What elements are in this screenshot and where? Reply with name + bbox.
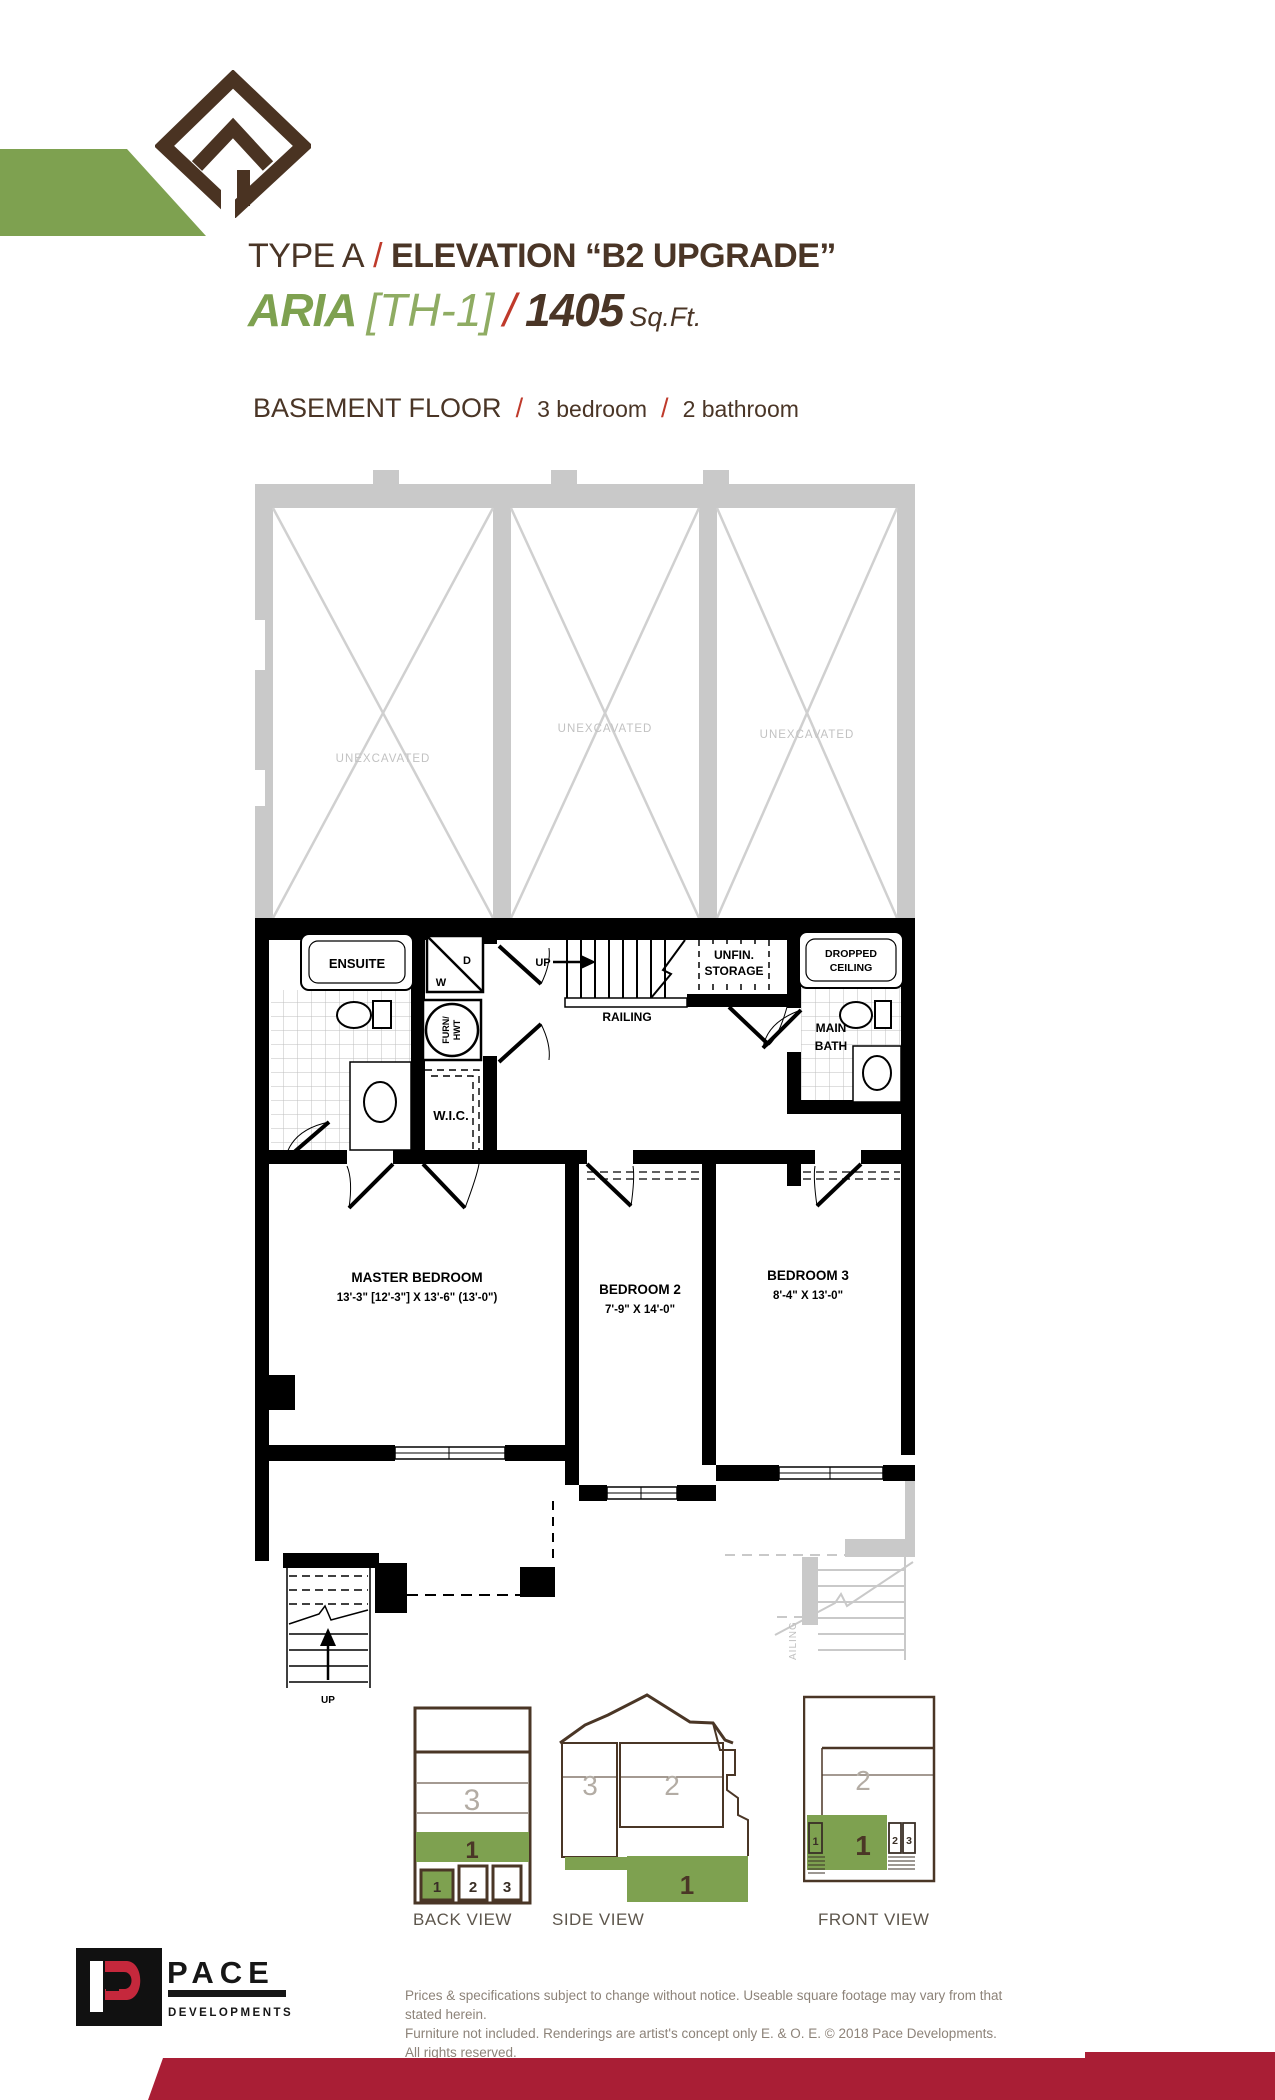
back-view-zone3: 3 bbox=[464, 1784, 481, 1817]
unexcavated-label-2: UNEXCAVATED bbox=[558, 723, 653, 735]
stair-railing-bar bbox=[565, 998, 687, 1007]
pace-sub-text: DEVELOPMENTS bbox=[168, 2007, 293, 2019]
side-view-zone2: 2 bbox=[664, 1770, 680, 1801]
stair-break-line bbox=[651, 940, 685, 998]
dryer-label: D bbox=[463, 955, 471, 967]
furnace-label-2: HWT bbox=[452, 1019, 462, 1040]
front-view-unit1-label: 1 bbox=[812, 1836, 818, 1848]
back-view-unit3-label: 3 bbox=[503, 1879, 511, 1896]
stair-treads bbox=[567, 940, 665, 998]
pace-logo-p-bar bbox=[90, 1961, 103, 2012]
furnace-labels: FURN/ HWT bbox=[441, 1016, 462, 1044]
sqft-unit: Sq.Ft. bbox=[629, 302, 701, 332]
neighbor-railing-label: AILING bbox=[788, 1621, 799, 1660]
floor-plan: UNEXCAVATED UNEXCAVATED UNEXCAVATED bbox=[255, 470, 915, 1710]
pace-developments-logo: PACE DEVELOPMENTS bbox=[75, 1945, 305, 2029]
pace-diamond-logo bbox=[155, 70, 311, 218]
wic-label: W.I.C. bbox=[433, 1108, 468, 1123]
unfin-storage-label-1: UNFIN. bbox=[714, 948, 754, 962]
washer-label: W bbox=[436, 977, 447, 989]
back-view-zone1: 1 bbox=[465, 1837, 478, 1864]
slash-icon: / bbox=[502, 393, 538, 423]
exterior-up-label: UP bbox=[321, 1695, 335, 1706]
furnace-label-1: FURN/ bbox=[441, 1016, 451, 1044]
front-view-unit3-label: 3 bbox=[906, 1835, 912, 1847]
wic-door-leaf bbox=[423, 1164, 465, 1208]
type-label: TYPE A bbox=[248, 237, 364, 275]
neighbor-stair-walls bbox=[802, 1481, 915, 1625]
elevation-label: ELEVATION “B2 UPGRADE” bbox=[391, 237, 836, 275]
pace-logo-bar bbox=[168, 1990, 286, 1997]
unexcavated-label-1: UNEXCAVATED bbox=[336, 753, 431, 765]
slash-icon: / bbox=[494, 284, 525, 336]
slash-icon: / bbox=[364, 237, 391, 275]
back-view-diagram: 3 1 1 2 3 bbox=[413, 1700, 533, 1905]
diamond-slit bbox=[221, 172, 235, 218]
back-view-unit1-label: 1 bbox=[433, 1879, 441, 1896]
ensuite-sink-icon bbox=[364, 1082, 396, 1122]
footer-band bbox=[0, 2058, 1275, 2100]
unfin-storage-label-2: STORAGE bbox=[704, 964, 763, 978]
disclaimer-line2: Furniture not included. Renderings are a… bbox=[405, 2024, 1005, 2062]
pace-logo-notch bbox=[106, 1982, 119, 1991]
bedroom-doors bbox=[347, 1164, 861, 1208]
bedroom3-label: BEDROOM 3 bbox=[767, 1268, 849, 1283]
front-view-unit2-label: 2 bbox=[892, 1835, 898, 1847]
unexcavated-cross-lines bbox=[273, 508, 897, 918]
unexcavated-label-3: UNEXCAVATED bbox=[760, 729, 855, 741]
bath-tub bbox=[799, 932, 903, 988]
bath-toilet-icon bbox=[840, 1001, 891, 1028]
back-view-label: BACK VIEW bbox=[413, 1910, 512, 1930]
stair-up-label: UP bbox=[535, 957, 550, 969]
back-view-unit2-label: 2 bbox=[469, 1879, 477, 1896]
ensuite-toilet-icon bbox=[337, 1001, 391, 1028]
front-view-zone1: 1 bbox=[855, 1830, 871, 1861]
dropped-ceiling-label-2: CEILING bbox=[830, 962, 873, 974]
title-line2: ARIA[TH-1]/1405Sq.Ft. bbox=[248, 283, 701, 337]
bedroom3-dims: 8'-4" X 13'-0" bbox=[773, 1290, 843, 1302]
slash-icon: / bbox=[647, 393, 683, 423]
title-line3: BASEMENT FLOOR/3 bedroom/2 bathroom bbox=[253, 393, 799, 424]
front-view-label: FRONT VIEW bbox=[818, 1910, 929, 1930]
main-bath-label-1: MAIN bbox=[816, 1021, 847, 1035]
ensuite-label: ENSUITE bbox=[329, 956, 386, 971]
disclaimer: Prices & specifications subject to chang… bbox=[405, 1986, 1005, 2062]
front-view-diagram: 2 1 1 2 3 bbox=[803, 1695, 938, 1905]
railing-label: RAILING bbox=[602, 1010, 651, 1024]
master-bedroom-label: MASTER BEDROOM bbox=[351, 1270, 482, 1285]
bath-sink-icon bbox=[863, 1056, 891, 1090]
bedroom2-dims: 7'-9" X 14'-0" bbox=[605, 1304, 675, 1316]
wic-door-arc bbox=[465, 1164, 479, 1208]
side-view-label: SIDE VIEW bbox=[552, 1910, 644, 1930]
side-view-zone1: 1 bbox=[680, 1870, 694, 1900]
side-view-diagram: 3 2 1 bbox=[552, 1690, 757, 1915]
brochure-page: TYPE A/ELEVATION “B2 UPGRADE” ARIA[TH-1]… bbox=[0, 0, 1275, 2100]
side-view-green-strip bbox=[565, 1857, 627, 1870]
exterior-stair-arrowhead bbox=[320, 1628, 336, 1646]
disclaimer-line1: Prices & specifications subject to chang… bbox=[405, 1986, 1005, 2024]
front-view-zone2: 2 bbox=[855, 1765, 871, 1796]
side-view-roof bbox=[560, 1695, 733, 1743]
side-view-zone3: 3 bbox=[582, 1770, 598, 1801]
sqft-value: 1405 bbox=[525, 284, 623, 336]
diamond-chevron bbox=[197, 128, 268, 166]
model-unit: [TH-1] bbox=[366, 284, 494, 336]
model-name: ARIA bbox=[248, 284, 356, 336]
master-bedroom-dims: 13'-3" [12'-3"] X 13'-6" (13'-0") bbox=[337, 1292, 498, 1304]
dropped-ceiling-label-1: DROPPED bbox=[825, 948, 877, 960]
floor-label: BASEMENT FLOOR bbox=[253, 393, 502, 423]
bath-door-leaf bbox=[763, 1010, 801, 1048]
main-bath-label-2: BATH bbox=[815, 1039, 847, 1053]
stair-up-arrowhead bbox=[581, 955, 596, 969]
title-line1: TYPE A/ELEVATION “B2 UPGRADE” bbox=[248, 237, 836, 276]
bedroom-count: 3 bedroom bbox=[537, 396, 647, 422]
bathroom-count: 2 bathroom bbox=[683, 396, 799, 422]
storage-door-leaf bbox=[729, 1007, 769, 1045]
bedroom2-label: BEDROOM 2 bbox=[599, 1282, 681, 1297]
pace-brand-text: PACE bbox=[167, 1955, 275, 1990]
diamond-tail bbox=[237, 170, 250, 206]
